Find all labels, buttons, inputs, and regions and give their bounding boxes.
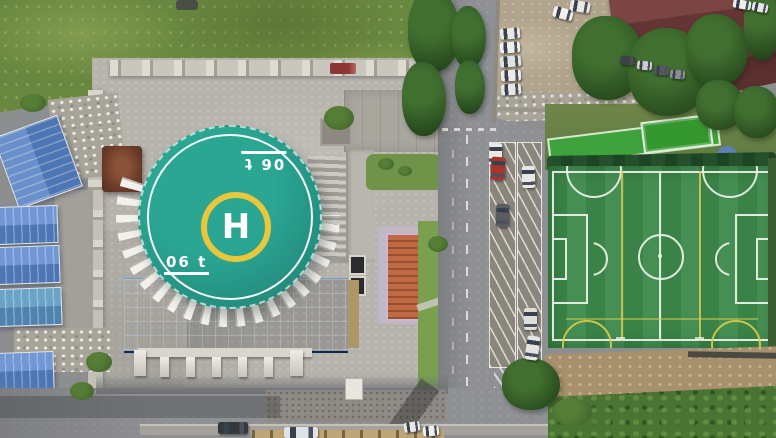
grass-dark-object [176,0,198,10]
car [500,27,521,40]
yellow-line [621,171,623,341]
bush [428,236,448,252]
helipad-weight-marking-bottom: 06 t [164,255,209,275]
bush [70,382,94,400]
aerial-photo: H 06 t 06 t [0,0,776,438]
facade-pillar [290,350,303,376]
tree [455,60,485,114]
warehouse-roof [0,205,59,245]
car-dark [218,422,248,434]
car [501,69,522,81]
soccer-field [548,166,776,348]
car [423,425,440,436]
helipad-h-letter: H [222,210,250,244]
car [496,204,510,227]
stop-line [442,128,500,131]
car [524,308,537,330]
bush [552,398,592,426]
facade-tan-strip [348,280,359,348]
field-right-treeline [768,158,776,358]
rooftop-vent [349,255,366,275]
center-spot [658,254,662,258]
gate-pillar [345,378,363,400]
car [637,60,653,70]
bush [398,166,412,176]
warehouse-roof [0,245,61,285]
facade-pillar [134,350,146,376]
lane-dashes [452,150,454,390]
helipad-touchdown-ring: H [201,192,271,262]
goal-area-left [552,238,567,280]
boundary-wall-top [110,60,448,76]
bush [20,94,46,112]
lane-dashes [466,135,468,390]
car [654,65,670,75]
tree [402,62,446,136]
yellow-line-horizontal [566,318,758,320]
yellow-line [699,171,701,341]
tree [452,6,486,68]
car [522,166,536,188]
street-shadow [0,396,280,418]
car [620,55,636,65]
warehouse-roof [0,351,55,391]
red-vehicle-behind-wall [330,63,356,74]
bush [86,352,112,372]
car [500,41,521,53]
tree [502,358,560,410]
facade-pillar [160,357,169,377]
bush [378,158,394,170]
goal-mark [616,337,625,340]
car [501,83,522,95]
facade-band [138,348,312,357]
service-lane [55,190,93,350]
facade-pillar [186,357,195,377]
car [500,55,522,68]
car [670,69,686,79]
facade-pillar [212,357,221,377]
bush [324,106,354,130]
helipad: H 06 t 06 t [138,125,322,309]
goal-mark [695,337,704,340]
warehouse-roof [0,287,63,327]
tree [734,86,776,138]
tree [686,14,748,86]
facade-pillar [264,357,273,377]
facade-pillar [238,357,247,377]
minibus [284,427,318,438]
helipad-weight-marking-top: 06 t [241,151,286,171]
car-red [490,157,505,181]
